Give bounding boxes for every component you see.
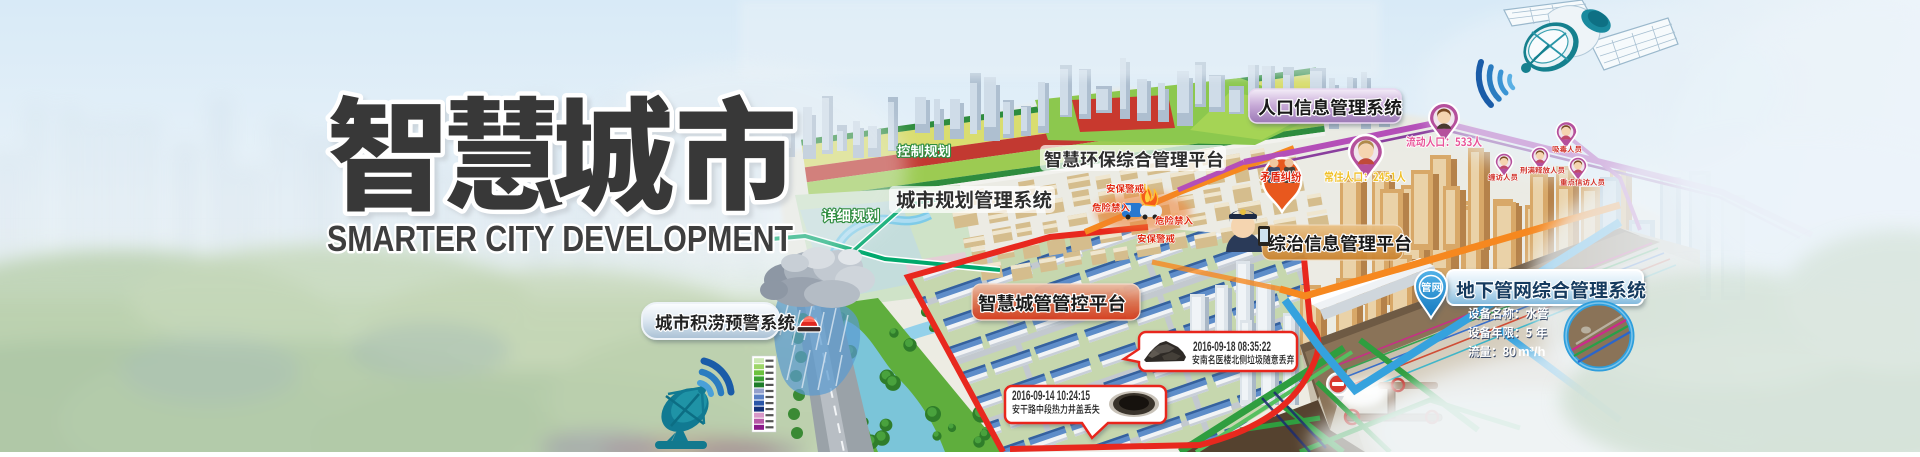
svg-text:2016-09-18 08:35:22: 2016-09-18 08:35:22: [1193, 339, 1271, 354]
svg-text:SMARTER CITY DEVELOPMENT: SMARTER CITY DEVELOPMENT: [327, 218, 793, 259]
svg-text:2016-09-14 10:24:15: 2016-09-14 10:24:15: [1012, 388, 1090, 403]
svg-text:m³/h: m³/h: [1518, 344, 1546, 359]
